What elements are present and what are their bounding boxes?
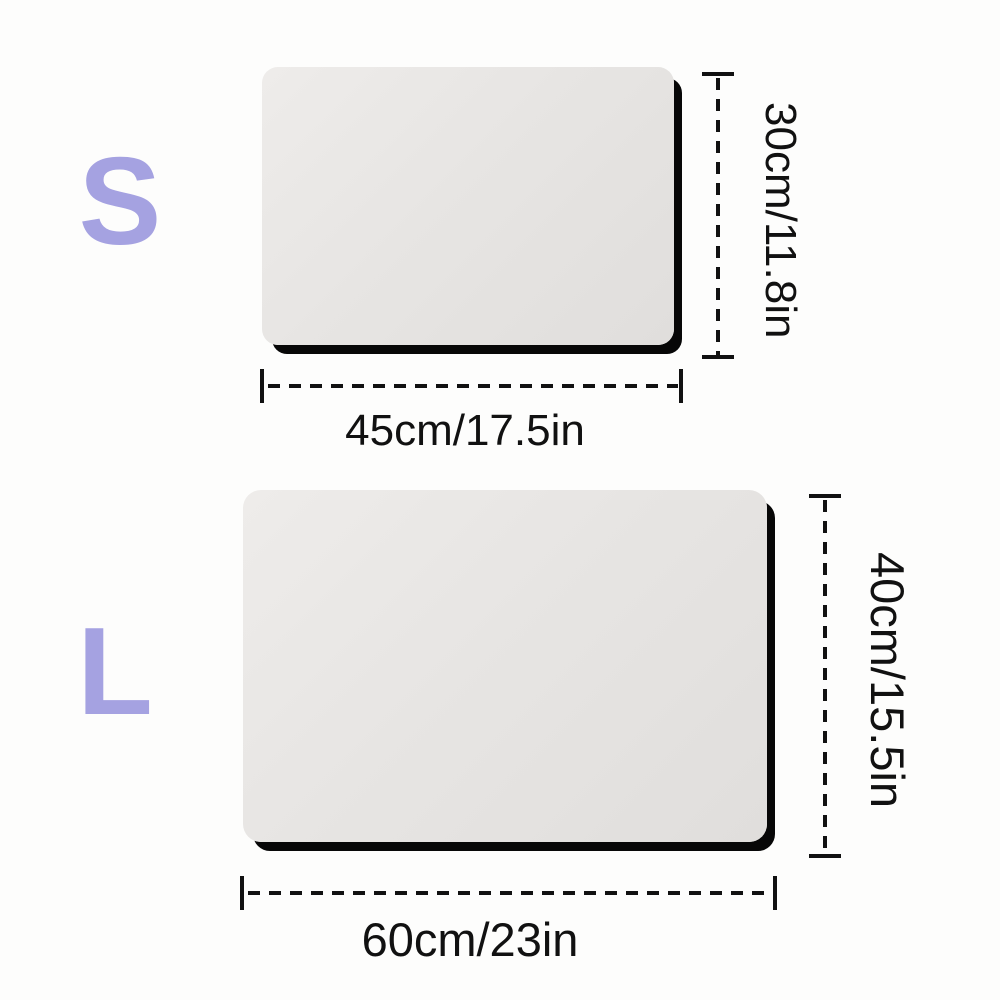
width-dimension-s: 45cm/17.5in xyxy=(290,406,640,456)
size-diagram: S 30cm/11.8in 45cm/17.5in L 40cm/15.5in … xyxy=(0,0,1000,1000)
height-dimension-l: 40cm/15.5in xyxy=(860,485,915,875)
mat-large xyxy=(243,490,767,842)
dim-cap-left-l xyxy=(240,876,244,910)
dim-cap-bottom-s xyxy=(702,355,734,359)
width-dimension-l: 60cm/23in xyxy=(280,912,660,967)
dim-line-height-l xyxy=(823,500,827,854)
dim-line-width-s xyxy=(268,384,678,388)
dim-cap-left-s xyxy=(260,369,264,403)
dim-line-width-l xyxy=(248,891,772,895)
dim-cap-right-l xyxy=(773,876,777,910)
height-dimension-s: 30cm/11.8in xyxy=(755,70,805,370)
size-label-s: S xyxy=(65,140,175,264)
dim-line-height-s xyxy=(716,78,720,355)
mat-small xyxy=(262,67,674,345)
dim-cap-bottom-l xyxy=(809,854,841,858)
size-label-l: L xyxy=(60,610,170,734)
dim-cap-top-l xyxy=(809,494,841,498)
dim-cap-top-s xyxy=(702,72,734,76)
dim-cap-right-s xyxy=(679,369,683,403)
